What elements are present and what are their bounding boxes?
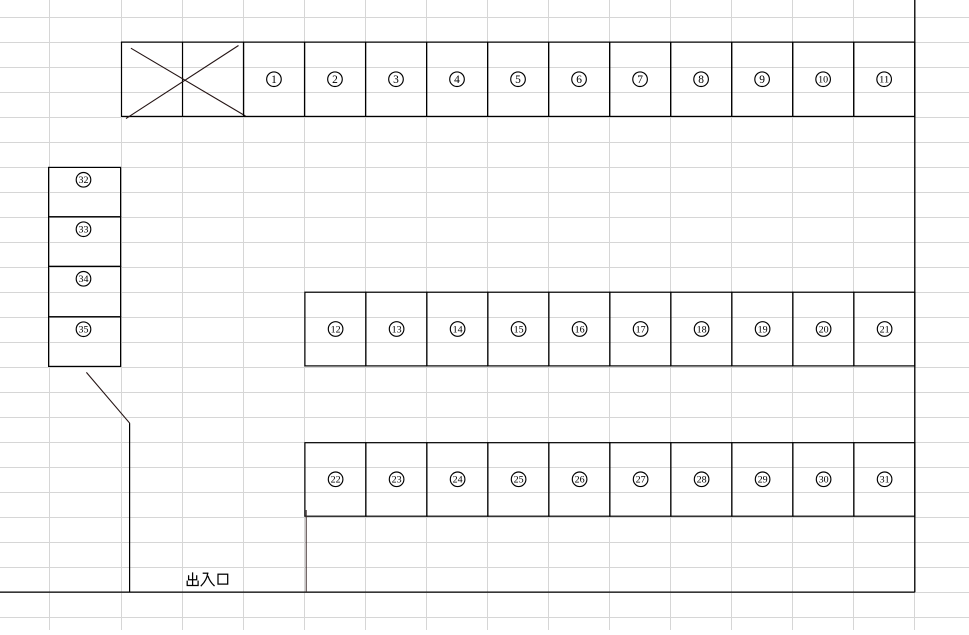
svg-text:28: 28 — [697, 476, 707, 486]
svg-text:35: 35 — [79, 326, 89, 336]
svg-text:10: 10 — [818, 76, 828, 86]
svg-text:27: 27 — [636, 476, 646, 486]
svg-text:20: 20 — [819, 325, 829, 335]
svg-text:26: 26 — [575, 476, 585, 486]
svg-text:11: 11 — [879, 76, 889, 86]
svg-text:13: 13 — [392, 325, 402, 335]
svg-text:17: 17 — [636, 325, 646, 335]
svg-text:14: 14 — [453, 325, 463, 335]
svg-text:7: 7 — [637, 74, 643, 86]
svg-text:33: 33 — [79, 226, 89, 236]
svg-text:34: 34 — [79, 275, 89, 285]
svg-text:30: 30 — [819, 476, 829, 486]
svg-text:21: 21 — [880, 325, 890, 335]
svg-text:3: 3 — [393, 74, 399, 86]
svg-text:12: 12 — [331, 325, 341, 335]
svg-text:23: 23 — [392, 476, 402, 486]
svg-text:29: 29 — [758, 476, 768, 486]
svg-text:31: 31 — [880, 476, 890, 486]
svg-text:22: 22 — [331, 476, 341, 486]
svg-text:15: 15 — [514, 325, 524, 335]
svg-text:18: 18 — [697, 325, 707, 335]
svg-text:1: 1 — [271, 74, 277, 86]
svg-text:32: 32 — [79, 176, 89, 186]
svg-text:24: 24 — [453, 476, 463, 486]
svg-text:5: 5 — [515, 74, 521, 86]
svg-text:19: 19 — [758, 325, 768, 335]
svg-text:9: 9 — [759, 74, 765, 86]
svg-text:16: 16 — [575, 325, 585, 335]
svg-text:8: 8 — [698, 74, 704, 86]
svg-text:4: 4 — [454, 74, 460, 86]
svg-text:2: 2 — [332, 74, 338, 86]
svg-text:6: 6 — [576, 74, 582, 86]
svg-text:25: 25 — [514, 476, 524, 486]
